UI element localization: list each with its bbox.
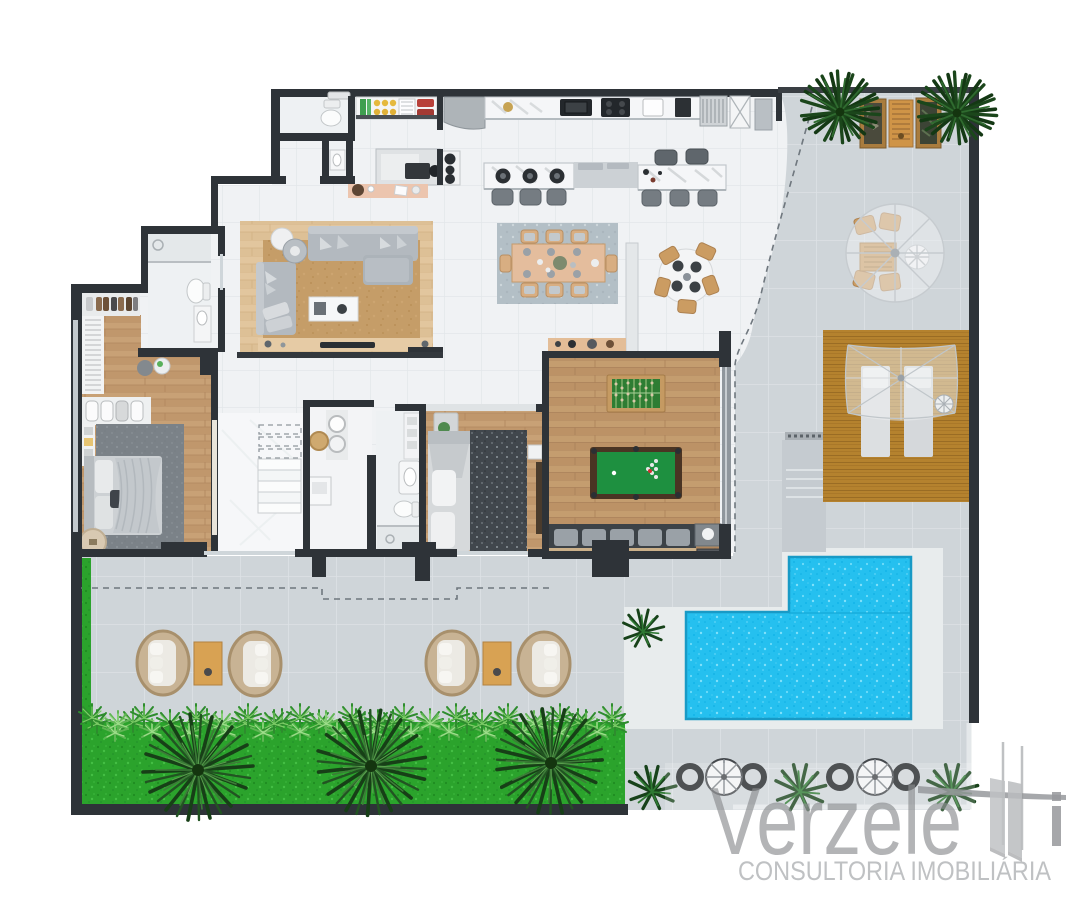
svg-text:CONSULTORIA IMOBILIÁRIA: CONSULTORIA IMOBILIÁRIA [738, 856, 1051, 886]
